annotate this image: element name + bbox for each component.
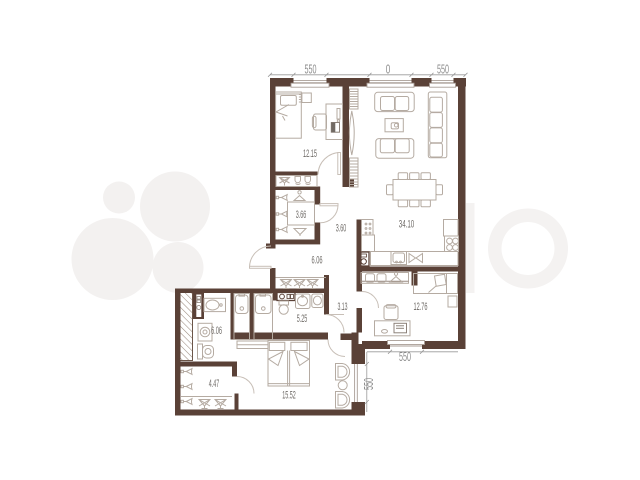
svg-text:3.60: 3.60	[336, 222, 347, 234]
svg-text:0: 0	[386, 61, 391, 76]
svg-text:550: 550	[305, 61, 317, 76]
svg-text:5.25: 5.25	[297, 313, 308, 325]
svg-text:15.52: 15.52	[282, 389, 296, 401]
svg-text:3.66: 3.66	[296, 209, 307, 221]
svg-text:6.06: 6.06	[211, 325, 222, 337]
svg-text:12.76: 12.76	[414, 301, 428, 313]
svg-text:550: 550	[399, 349, 411, 364]
svg-text:12.15: 12.15	[303, 148, 317, 160]
svg-text:550: 550	[437, 61, 449, 76]
svg-text:3.13: 3.13	[338, 301, 348, 313]
svg-text:6.06: 6.06	[312, 254, 323, 266]
svg-text:4.47: 4.47	[209, 378, 220, 390]
svg-text:550: 550	[361, 378, 376, 390]
svg-text:34.10: 34.10	[399, 218, 415, 230]
